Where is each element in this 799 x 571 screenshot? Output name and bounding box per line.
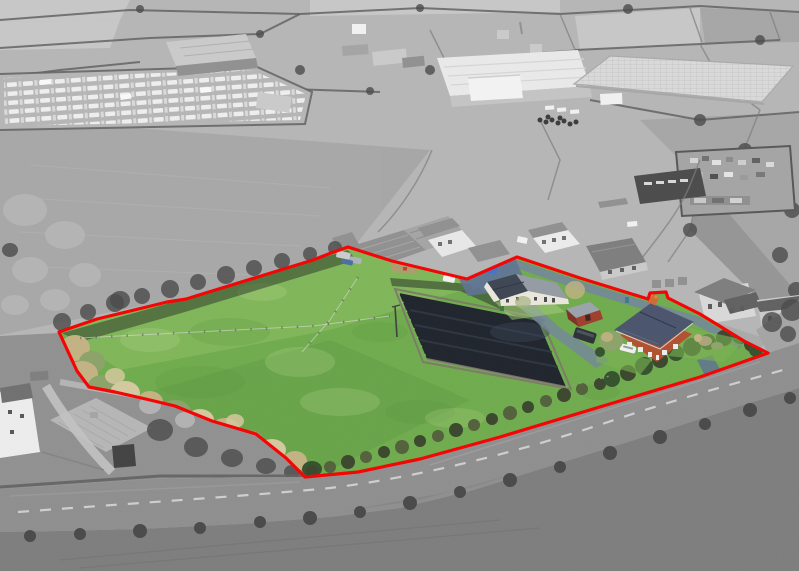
aerial-photo-stage: Aerial drone photograph of a smallholdin…: [0, 0, 799, 571]
film-grain: [0, 0, 799, 571]
aerial-photograph: Aerial drone photograph of a smallholdin…: [0, 0, 799, 571]
